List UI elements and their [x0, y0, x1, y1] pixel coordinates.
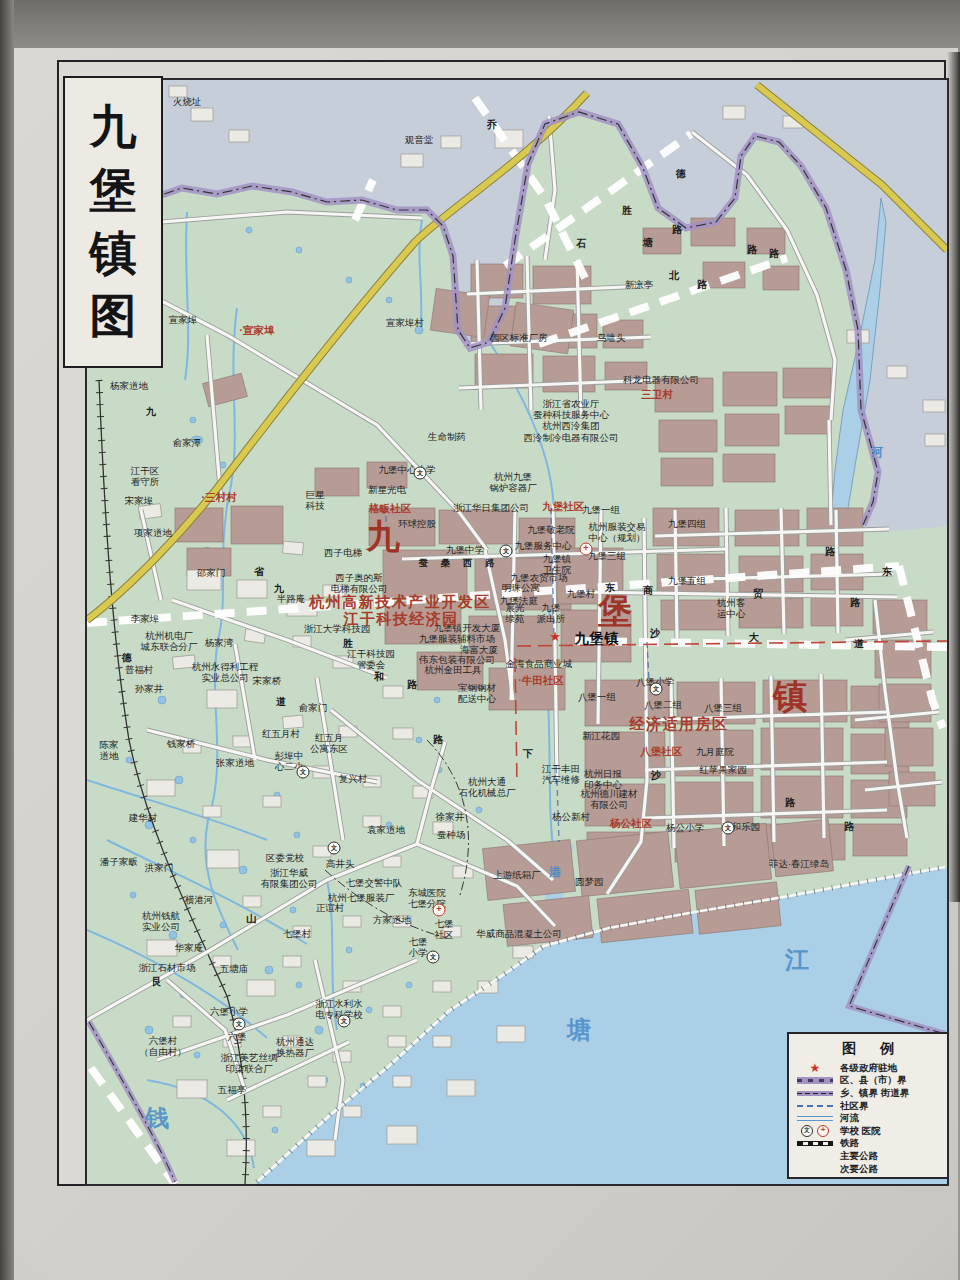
map-label: 杭州大通 石化机械总厂 — [459, 776, 516, 798]
school-icon: 文 — [328, 842, 341, 855]
map-label: 德 — [122, 652, 132, 664]
map-label: 高井头 — [326, 858, 355, 869]
map-label: 路 — [433, 734, 443, 746]
map-label: 火烧址 — [173, 96, 202, 107]
map-label: 杨公新村 — [552, 811, 590, 822]
school-icon: 文 — [650, 683, 663, 696]
map-title-char: 图 — [90, 293, 137, 340]
legend-box: 图 例 ★各级政府驻地区、县（市）界乡、镇界 街道界社区界河流文+学校 医院铁路… — [787, 1032, 949, 1179]
map-label: 宣家埠村 — [386, 317, 424, 328]
map-title-text: 九堡镇图 — [90, 88, 137, 356]
map-label: 港 — [549, 865, 561, 879]
school-icon: 文 — [338, 1015, 351, 1028]
map-label: 八堡一组 — [578, 691, 616, 702]
legend-symbol-district — [797, 1077, 833, 1084]
map-title-char: 九 — [90, 104, 137, 151]
map-label: 九 — [146, 406, 156, 418]
map-label: 七堡 小学 — [409, 936, 428, 958]
map-label: 塘 — [567, 1016, 591, 1044]
map-label: 沙 — [650, 628, 660, 640]
map-label: 杭州金田工具 — [425, 664, 482, 675]
map-label: 李家埠 — [131, 613, 160, 624]
map-label: 杭州九堡 锅炉容器厂 — [489, 471, 537, 493]
map-label: 格畈社区 — [369, 502, 411, 514]
river-swatch — [797, 1116, 833, 1121]
map-label: 晨光 绿苑 — [506, 602, 525, 624]
map-label: 钱家桥 — [167, 738, 196, 749]
map-label: 金海食品商业城 — [506, 658, 573, 669]
railway-swatch — [797, 1141, 833, 1146]
map-label: 袁家道地 — [367, 824, 405, 835]
map-label: 红苹果家园 — [699, 764, 747, 775]
map-label: 乔 — [487, 119, 497, 131]
map-label: 菲达·春江绿岛 — [769, 858, 829, 869]
community-swatch — [797, 1105, 833, 1107]
map-label: 徐家井 — [436, 811, 465, 822]
map-label: 宋家埠 — [125, 495, 154, 506]
map-label: 九 — [274, 583, 284, 595]
legend-symbol-star: ★ — [797, 1062, 833, 1074]
legend-item: 社区界 — [797, 1100, 939, 1113]
map-label: 六堡 — [228, 1031, 247, 1042]
map-label: 江干科技园 管委会 — [347, 648, 395, 670]
map-label: 杭州机电厂 城东联合分厂 — [141, 630, 198, 652]
map-label: 新江花园 — [582, 730, 620, 741]
map-label: 宝钢钢材 配送中心 — [458, 682, 496, 704]
map-label: 九堡中学 — [446, 544, 484, 555]
map-label: 浙江华日集团公司 — [453, 502, 529, 513]
map-label: 路 — [769, 248, 779, 260]
map-label: 杨家湾 — [205, 637, 234, 648]
map-label: 江干丰田 汽车维修 — [542, 763, 580, 785]
map-label: 艮 — [152, 976, 162, 988]
map-title: 九堡镇图 — [63, 76, 163, 368]
map-label: 路 — [825, 546, 835, 558]
legend-item: 次要公路 — [797, 1163, 939, 1176]
map-label: 俞家门 — [299, 702, 328, 713]
map-label: 商 — [643, 585, 653, 597]
map-label: 和 — [374, 671, 384, 683]
map-label: 道 — [854, 638, 864, 650]
map-label: 东 — [882, 566, 892, 578]
school-icon: 文 — [722, 822, 735, 835]
map-label: 路 — [844, 821, 854, 833]
map-label: 经济适用房区 — [630, 715, 729, 733]
map-label: 九堡一组 — [582, 504, 620, 515]
map-label: 五福亭 — [218, 1084, 247, 1095]
legend-label: 主要公路 — [840, 1150, 878, 1163]
legend-item: 主要公路 — [797, 1150, 939, 1163]
map-label: 九堡五组 — [668, 575, 706, 586]
map-label: 七堡 社区 — [435, 918, 454, 940]
map-label: 九堡社区 — [542, 500, 584, 512]
map-label: 路 — [697, 279, 707, 291]
map-label: ·宣家埠 — [240, 324, 275, 336]
map-label: 九堡敬老院 — [527, 524, 575, 535]
map-label: ·牛田社区 — [518, 674, 564, 686]
map-label: 九月庭院 — [696, 746, 734, 757]
map-label: 九堡服务中心 — [515, 540, 572, 551]
map-label: 河 — [871, 445, 883, 459]
map-label: 普福村 — [125, 664, 154, 675]
map-label: 华威商品混凝土公司 — [476, 928, 562, 939]
map-label: 红五月 公寓东区 — [310, 732, 348, 754]
legend-label: 次要公路 — [840, 1163, 878, 1176]
map-label: 浙江华威 有限集团公司 — [261, 867, 318, 889]
map-label: 塘 — [643, 237, 653, 249]
map-label: 杭州德川建材 有限公司 — [581, 788, 638, 810]
map-label: 九堡镇 — [575, 630, 620, 647]
map-label: 半路庵 — [277, 593, 306, 604]
map-label: 道 — [276, 696, 286, 708]
map-label: 七堡村 — [283, 928, 312, 939]
map-label: 横港河 — [185, 894, 214, 905]
map-label: 巨星 科技 — [306, 489, 325, 511]
map-label: 观音堂 — [405, 134, 434, 145]
map-label: 九堡服装辅料市场 — [419, 633, 495, 644]
school-icon: 文 — [297, 766, 310, 779]
map-label: 杭州客 运中心 — [717, 597, 746, 619]
map-label: 省 — [254, 566, 264, 578]
map-label: 上游纸箱厂 — [493, 869, 541, 880]
school-icon: 文 — [233, 1018, 246, 1031]
legend-item: ★各级政府驻地 — [797, 1062, 939, 1075]
map-label: 杭州钱航 实业公司 — [142, 910, 180, 932]
map-label: 西子奥的斯 电梯有限公司 — [331, 572, 388, 594]
map-title-char: 堡 — [90, 167, 137, 214]
map-label: 潘子家畈 — [100, 856, 138, 867]
legend-label: 河流 — [840, 1112, 859, 1125]
legend-symbol-town — [797, 1091, 833, 1096]
map-label: 九 — [366, 517, 400, 557]
map-label: 蚕 桑 西 路 — [419, 557, 500, 568]
hospital-icon: + — [817, 1125, 829, 1137]
school-icon: 文 — [500, 545, 513, 558]
map-label: 八堡二组 — [644, 699, 682, 710]
map-label: 新凉亭 — [625, 279, 654, 290]
map-label: 大 — [749, 632, 759, 644]
map-label: 浙江美艺丝绸 印染联合厂 — [221, 1052, 278, 1074]
map-label: 杨家道地 — [110, 380, 148, 391]
map-label: 六堡村 （自由村） — [139, 1035, 187, 1057]
government-star-icon: ★ — [549, 629, 561, 644]
map-title-char: 镇 — [90, 230, 137, 277]
map-label: 新星光电 — [368, 484, 406, 495]
legend-label: 区、县（市）界 — [840, 1074, 907, 1087]
map-label: 洪家门 — [145, 862, 174, 873]
map-label: 九堡村 — [567, 588, 596, 599]
map-label: 圆梦园 — [575, 876, 604, 887]
map-label: 九堡三组 — [588, 550, 626, 561]
town-swatch — [797, 1091, 833, 1096]
map-label: 方家道地 — [373, 914, 411, 925]
legend-item: 河流 — [797, 1112, 939, 1125]
map-label: 杨公社区 — [610, 817, 652, 829]
legend-label: 社区界 — [840, 1100, 869, 1113]
map-label: 宋家桥 — [253, 675, 282, 686]
map-label: 东 — [605, 582, 615, 594]
map-label: 正谊村 — [316, 902, 345, 913]
legend-symbol-river — [797, 1116, 833, 1121]
school-icon: 文 — [801, 1125, 813, 1137]
map-label: 下 — [523, 748, 533, 760]
map-label: 红五月村 — [262, 728, 300, 739]
legend-item: 区、县（市）界 — [797, 1075, 939, 1088]
map-label: 陈家 道地 — [100, 739, 119, 761]
legend-item: 乡、镇界 街道界 — [797, 1087, 939, 1100]
map-label: 杭州永得利工程 实业总公司 — [192, 661, 259, 683]
legend-symbol-community — [797, 1105, 833, 1107]
page-edge-shadow — [947, 52, 960, 902]
map-label: 杭州七堡服装厂 — [328, 892, 395, 903]
map-label: 九堡中心小学 — [379, 464, 436, 475]
map-label: 区委党校 — [266, 852, 304, 863]
map-label: 路 — [785, 797, 795, 809]
star-icon: ★ — [810, 1062, 821, 1074]
legend-label: 乡、镇界 街道界 — [840, 1087, 909, 1100]
hospital-icon: + — [580, 543, 593, 556]
district-swatch — [797, 1077, 833, 1084]
legend-label: 学校 医院 — [840, 1125, 881, 1138]
map-label: 宣家埠 — [169, 314, 198, 325]
map-label: 杭州服装交易 中心（规划） — [589, 521, 646, 543]
map-label: 复兴村 — [339, 773, 368, 784]
map-label: 江 — [785, 946, 809, 974]
map-label: 路 — [747, 244, 757, 256]
map-label: 石 — [576, 238, 586, 250]
map-label: 五塘庙 — [220, 963, 249, 974]
legend-label: 各级政府驻地 — [840, 1062, 897, 1075]
map-label: 北 — [669, 270, 679, 282]
map-label: 杭州高新技术产业开发区 — [309, 593, 491, 611]
map-label: 园区标准厂房 — [491, 332, 548, 343]
map-label: 邵家门 — [197, 567, 226, 578]
map-label: 孙家井 — [135, 683, 164, 694]
hospital-icon: + — [433, 904, 446, 917]
map-label: 沙 — [651, 770, 661, 782]
map-label: 六堡小学 — [210, 1006, 248, 1017]
legend-symbol-railway — [797, 1141, 833, 1146]
map-label: 张家道地 — [216, 757, 254, 768]
map-label: 三卫村 — [641, 388, 673, 400]
map-label: 华家庵 — [175, 942, 204, 953]
legend-title: 图 例 — [797, 1040, 939, 1058]
map-label: 鸟墙头 — [597, 332, 626, 343]
map-label: 项家道地 — [134, 527, 172, 538]
map-label: 钱 — [145, 1104, 169, 1132]
map-label: 江干区 看守所 — [131, 465, 160, 487]
map-label: 环球控股 — [398, 518, 436, 529]
map-label: 江干科技经济园 — [343, 610, 459, 628]
map-label: 山 — [246, 913, 256, 925]
map-label: 七堡交警中队 — [346, 877, 403, 888]
map-label: 科龙电器有限公司 — [623, 374, 699, 385]
map-label: 浙江石材市场 — [139, 962, 196, 973]
map-label: 浙江省农业厅 蚕种科技服务中心 杭州西泠集团 西泠制冷电器有限公司 — [524, 398, 619, 443]
map-label: 蚕种场 — [437, 829, 466, 840]
map-label: 俞家潭 — [173, 437, 202, 448]
map-label: 堡 — [598, 591, 632, 631]
map-label: 路 — [850, 597, 860, 609]
map-label: 路 — [407, 679, 417, 691]
map-labels-layer: 火烧址观音堂宣家埠·宣家埠宣家埠村杨家道地俞家潭九新凉亭园区标准厂房鸟墙头科龙电… — [87, 80, 947, 1184]
map-label: 杭州通达 换热器厂 — [276, 1036, 314, 1058]
map-label: 建华村 — [129, 812, 158, 823]
school-icon: 文 — [427, 951, 440, 964]
school-icon: 文 — [414, 467, 427, 480]
legend-item: 铁路 — [797, 1138, 939, 1151]
map-label: 八堡社区 — [640, 745, 682, 757]
map-label: 镇 — [773, 677, 807, 717]
map-label: 德 — [676, 168, 686, 180]
legend-items: ★各级政府驻地区、县（市）界乡、镇界 街道界社区界河流文+学校 医院铁路主要公路… — [797, 1062, 939, 1175]
legend-symbol-school-hospital: 文+ — [797, 1125, 833, 1137]
map-label: 八堡三组 — [704, 702, 742, 713]
map-label: 路 — [672, 224, 682, 236]
map-label: 九堡 派出所 — [537, 602, 566, 624]
map-label: ·三村村 — [202, 491, 237, 503]
photo-background-left — [0, 0, 14, 1280]
legend-label: 铁路 — [840, 1137, 859, 1150]
map-label: 九堡四组 — [668, 518, 706, 529]
map-frame: 火烧址观音堂宣家埠·宣家埠宣家埠村杨家道地俞家潭九新凉亭园区标准厂房鸟墙头科龙电… — [85, 78, 949, 1186]
map-label: 贸 — [753, 588, 763, 600]
map-label: 胜 — [622, 205, 632, 217]
map-label: 明珠公寓 — [502, 582, 540, 593]
map-label: 杨公小学 — [666, 822, 704, 833]
map-label: 生命制药 — [428, 431, 466, 442]
legend-item: 文+学校 医院 — [797, 1125, 939, 1138]
map-label: 西子电梯 — [324, 547, 362, 558]
